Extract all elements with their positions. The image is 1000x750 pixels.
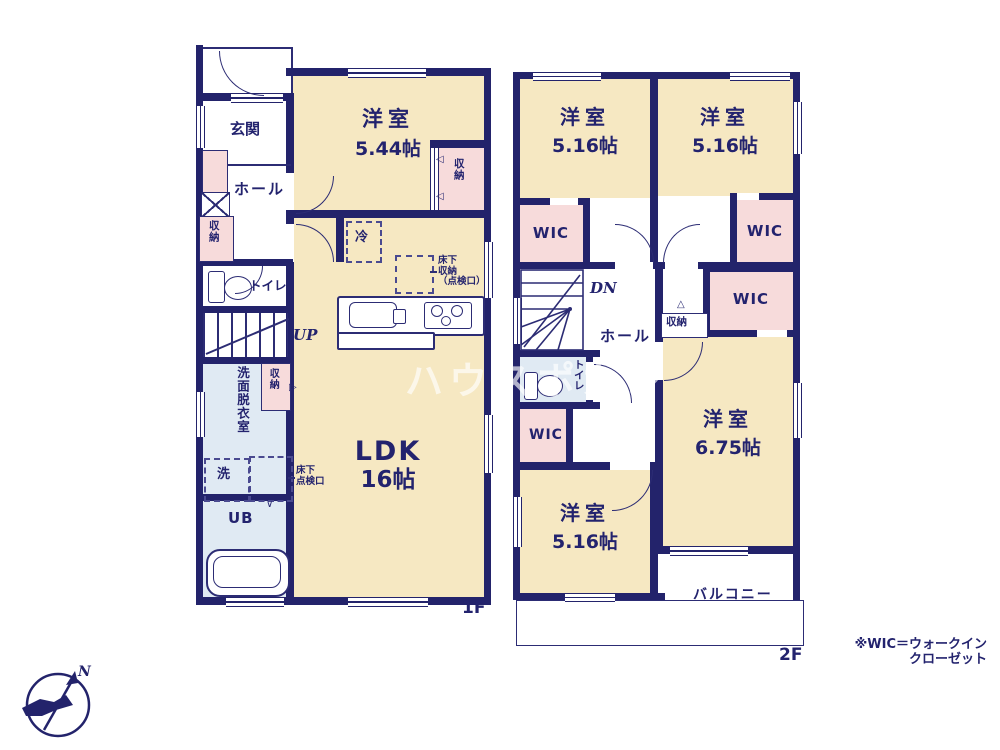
- bedroom-right-name: 洋室: [678, 408, 778, 430]
- floor1-label: 1F: [462, 599, 485, 618]
- bedroom-tr-size: 5.16帖: [675, 136, 775, 157]
- underfloor-storage-label: 床下 収納 （点検口）: [438, 256, 486, 288]
- wall-segment: [430, 140, 484, 148]
- wic-note-line1: ※WIC＝ウォークイン: [855, 637, 987, 652]
- kitchen-faucet: [393, 309, 406, 324]
- wic-note-line2: クローゼット: [909, 652, 987, 667]
- underfloor-hatch-box: [249, 456, 293, 502]
- compass-north-label: N: [77, 664, 92, 680]
- hall-storage-label: 収納: [666, 317, 687, 329]
- storage-door-mark: △: [677, 300, 685, 310]
- stairs-up-label: UP: [293, 327, 317, 344]
- bedroom-right-size: 6.75帖: [678, 438, 778, 459]
- washer-label: 洗: [217, 468, 230, 483]
- window: [533, 72, 601, 81]
- window: [793, 102, 802, 154]
- closet-opening: [550, 198, 578, 205]
- wic-tr-label: WIC: [735, 223, 795, 240]
- wic-tl-label: WIC: [521, 225, 581, 242]
- closet-door-mark: ◁: [436, 155, 444, 165]
- underfloor-storage-l2: 収納: [438, 266, 457, 277]
- window: [565, 593, 615, 602]
- underfloor-hatch-l1: 床下: [296, 465, 315, 476]
- ldk-name: LDK: [338, 437, 438, 467]
- bathtub-inner: [213, 556, 281, 588]
- door-opening: [610, 462, 652, 470]
- window: [348, 597, 428, 607]
- window: [196, 106, 205, 148]
- genkan-label: 玄関: [230, 121, 260, 138]
- window: [730, 72, 790, 81]
- wall-segment: [650, 462, 658, 600]
- wic-mid-label: WIC: [721, 291, 781, 308]
- unit-bath-label: UB: [228, 510, 254, 527]
- wall-segment: [650, 72, 658, 262]
- hall-closet-label: 収納: [207, 220, 219, 243]
- door-opening: [615, 262, 653, 269]
- bath-door-mark: ∨: [266, 500, 273, 510]
- washroom-closet-label: 収納: [267, 368, 278, 390]
- compass-icon: N: [16, 658, 104, 746]
- wall-segment: [703, 265, 800, 272]
- kitchen-sink: [349, 302, 397, 328]
- bedroom-tl-door-arc: [615, 224, 654, 263]
- closet-door-mark: ◁: [436, 192, 444, 202]
- window: [348, 68, 426, 78]
- fridge-label: 冷: [355, 231, 368, 246]
- stove-burner: [431, 305, 443, 317]
- hall1-label: ホール: [234, 181, 285, 198]
- leader-line: [288, 477, 295, 479]
- stove-burner: [451, 305, 463, 317]
- staircase-down: [520, 269, 584, 351]
- wall-segment: [583, 198, 590, 269]
- underfloor-storage-l1: 床下: [438, 255, 457, 266]
- shoe-cabinet: [201, 192, 230, 218]
- underfloor-hatch-label: 床下 点検口: [296, 466, 325, 487]
- closet-opening: [757, 330, 787, 337]
- wall-segment: [336, 218, 344, 262]
- bedroom-tl-name: 洋室: [535, 106, 635, 128]
- bedroom-closet-label: 収納: [452, 158, 464, 181]
- wic-note: ※WIC＝ウォークイン クローゼット: [812, 638, 987, 667]
- window: [196, 392, 205, 437]
- window: [670, 546, 748, 556]
- underfloor-hatch-l2: 点検口: [296, 476, 325, 487]
- window: [484, 415, 493, 473]
- bedroom-bottom-size: 5.16帖: [535, 532, 635, 553]
- leader-line: [430, 271, 437, 273]
- stairs-down-label: DN: [590, 280, 617, 297]
- door-opening: [286, 224, 294, 262]
- hall2-label: ホール: [600, 328, 651, 345]
- bedroom-tr-door-arc: [663, 224, 700, 263]
- bedroom-544-size: 5.44帖: [338, 139, 438, 160]
- stove-burner: [441, 316, 451, 326]
- underfloor-storage-l3: （点検口）: [438, 276, 486, 287]
- kitchen-counter-front: [337, 332, 435, 350]
- washroom-label: 洗面脱衣室: [235, 366, 249, 458]
- wall-segment: [286, 210, 491, 218]
- genkan-step-line: [225, 164, 291, 166]
- balcony-outline: [516, 600, 804, 646]
- balcony-label: バルコニー: [693, 588, 773, 604]
- window: [513, 497, 522, 547]
- compass-needle: [22, 695, 73, 716]
- wic-bl-label: WIC: [516, 428, 576, 444]
- bedroom-tr-name: 洋室: [675, 106, 775, 128]
- watermark: ハウスポカシ: [405, 350, 669, 405]
- closet-opening: [735, 193, 759, 200]
- window: [226, 597, 284, 607]
- toilet1-tank: [208, 271, 225, 303]
- wall-segment: [484, 68, 491, 605]
- underfloor-storage-box: [395, 255, 434, 294]
- floor-plan-canvas: 収納 トイレ UP 洗面脱衣室 収納 ▷ 洗 床下 点検口 UB ∨ 洋室 5.…: [0, 0, 1000, 750]
- door-opening: [665, 262, 698, 269]
- floor2-label: 2F: [779, 646, 802, 665]
- bedroom-544-name: 洋室: [338, 108, 438, 132]
- entry-closet: [202, 150, 228, 194]
- window: [793, 383, 802, 438]
- closet-door-mark: ▷: [289, 383, 297, 393]
- wall-segment: [196, 306, 293, 313]
- bedroom-tl-size: 5.16帖: [535, 136, 635, 157]
- ldk-size: 16帖: [338, 468, 438, 494]
